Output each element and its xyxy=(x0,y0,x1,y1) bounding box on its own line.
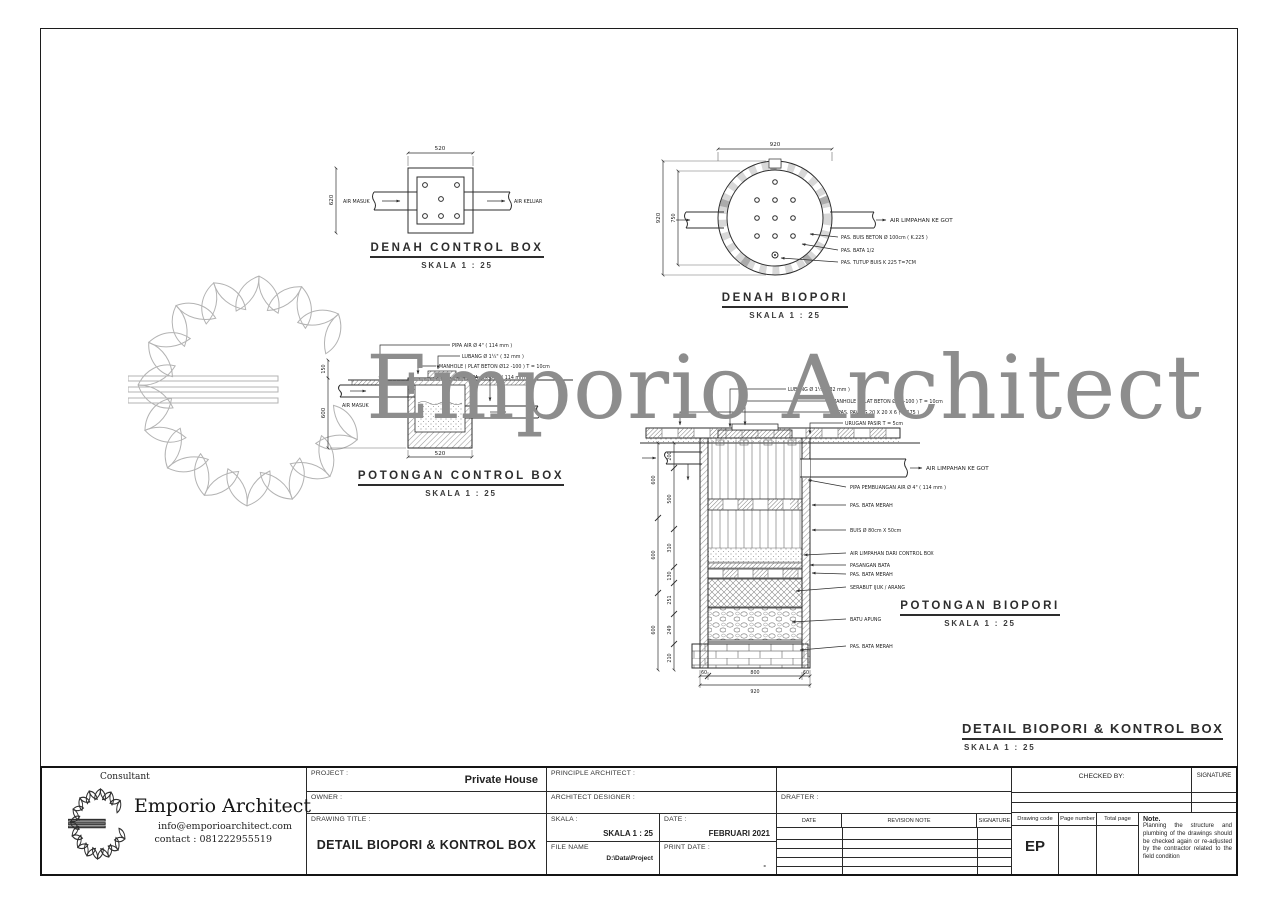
checked-by-cell: CHECKED BY: xyxy=(1012,768,1192,812)
callout-manhole: MANHOLE ( PLAT BETON Ø12 -100 ) T = 10cm xyxy=(832,398,943,405)
panel-scale-text: SKALA 1 : 25 xyxy=(350,261,564,270)
dim-label: 920 xyxy=(770,142,781,148)
consultant-contact: contact : 081222955519 xyxy=(42,834,272,845)
callout-air-dari-controlbox: AIR LIMPAHAN DARI CONTROL BOX xyxy=(850,551,934,557)
dim-label: 249 xyxy=(667,625,673,634)
callout-pipa-air-2: PIPA AIR Ø 4" ( 114 mm ) xyxy=(468,374,528,381)
architect-designer-cell: ARCHITECT DESIGNER : xyxy=(547,792,777,814)
project-label: PROJECT : xyxy=(311,770,348,777)
skala-value: SKALA 1 : 25 xyxy=(603,829,653,838)
dim-label: 600 xyxy=(651,550,657,559)
dim-label: 600 xyxy=(651,475,657,484)
dim-label: 600 xyxy=(651,625,657,634)
note-title: Note. xyxy=(1143,816,1232,823)
callout-lubang: LUBANG Ø 1¼" ( 32 mm ) xyxy=(788,386,850,393)
callout-buis: BUIS Ø 80cm X 50cm xyxy=(850,527,902,534)
drawing-code-cell: Drawing code EP xyxy=(1012,812,1059,874)
note-cell: Note. Planning the structure and plumbin… xyxy=(1139,812,1236,874)
callout-pas-bata: PAS. BATA 1/2 xyxy=(841,248,874,254)
principle-architect-label: PRINCIPLE ARCHITECT : xyxy=(551,770,635,777)
panel-scale-text: SKALA 1 : 25 xyxy=(882,619,1078,628)
title-denah-control-box: DENAH CONTROL BOX SKALA 1 : 25 xyxy=(350,238,564,270)
drawing-title-value: DETAIL BIOPORI & KONTROL BOX xyxy=(307,838,546,852)
dim-label: 60 xyxy=(803,670,809,676)
drawing-sheet: 520 620 AIR MASUK AIR KELUAR 920 920 xyxy=(0,0,1280,905)
date-cell: DATE : FEBRUARI 2021 xyxy=(660,814,777,842)
callout-tutup-buis: PAS. TUTUP BUIS K 225 T=7CM xyxy=(841,260,916,266)
owner-label: OWNER : xyxy=(311,794,342,801)
panel-scale-text: SKALA 1 : 25 xyxy=(678,311,892,320)
dim-label: 750 xyxy=(671,213,677,222)
callout-pipa-pembuangan: PIPA PEMBUANGAN AIR Ø 4" ( 114 mm ) xyxy=(850,484,946,491)
architect-designer-label: ARCHITECT DESIGNER : xyxy=(551,794,635,801)
title-potongan-biopori: POTONGAN BIOPORI SKALA 1 : 25 xyxy=(882,596,1078,628)
revision-divider xyxy=(977,828,978,874)
project-cell: PROJECT : Private House xyxy=(307,768,547,792)
total-page-cell: Total page xyxy=(1097,812,1139,874)
title-block: Consultant Emporio Architect info@empori… xyxy=(40,766,1238,876)
callout-air-masuk: AIR MASUK xyxy=(343,199,371,205)
callout-air-limpahan: AIR LIMPAHAN KE GOT xyxy=(926,466,989,472)
revision-signature-header: SIGNATURE xyxy=(977,814,1012,828)
panel-denah-biopori: 920 920 750 AIR LIMPAHAN KE GOT PAS. xyxy=(656,142,953,275)
dim-label: 600 xyxy=(321,407,327,418)
date-label: DATE : xyxy=(664,816,687,823)
blank-cell xyxy=(777,768,1012,792)
file-name-value: D:\Data\Project xyxy=(606,855,653,862)
panel-scale-text: SKALA 1 : 25 xyxy=(336,489,586,498)
dim-label: 520 xyxy=(435,146,446,152)
signature-label: SIGNATURE xyxy=(1192,768,1236,779)
callout-bata-merah-1: PAS. BATA MERAH xyxy=(850,503,893,509)
dim-label: 920 xyxy=(750,689,759,695)
drafter-label: DRAFTER : xyxy=(781,794,819,801)
consultant-name: Emporio Architect xyxy=(134,795,311,817)
revision-note-header: REVISION NOTE xyxy=(842,814,977,828)
skala-label: SKALA : xyxy=(551,816,578,823)
checked-row-line xyxy=(1012,802,1236,803)
checked-by-label: CHECKED BY: xyxy=(1012,768,1191,780)
dim-label: 500 xyxy=(667,494,673,503)
panel-title-text: POTONGAN BIOPORI xyxy=(900,600,1060,616)
print-date-label: PRINT DATE : xyxy=(664,844,710,851)
callout-air-masuk: AIR MASUK xyxy=(342,403,370,409)
print-date-cell: PRINT DATE : - xyxy=(660,842,777,874)
panel-title-text: POTONGAN CONTROL BOX xyxy=(358,470,564,486)
sheet-title-scale: SKALA 1 : 25 xyxy=(964,743,1240,752)
revision-row-line xyxy=(777,848,1011,849)
revision-row-line xyxy=(777,866,1011,867)
panel-title-text: DENAH CONTROL BOX xyxy=(370,242,543,258)
callout-manhole: MANHOLE ( PLAT BETON Ø12 -100 ) T = 10cm xyxy=(439,363,550,370)
file-name-cell: FILE NAME D:\Data\Project xyxy=(547,842,660,874)
callout-pipa-air-1: PIPA AIR Ø 4" ( 114 mm ) xyxy=(452,342,512,349)
dim-label: 920 xyxy=(656,212,662,223)
page-number-cell: Page number xyxy=(1059,812,1097,874)
callout-lubang: LUBANG Ø 1¼" ( 32 mm ) xyxy=(462,353,524,360)
dim-label: 200 xyxy=(667,451,673,460)
title-potongan-control-box: POTONGAN CONTROL BOX SKALA 1 : 25 xyxy=(336,466,586,498)
dim-label: 130 xyxy=(667,571,673,580)
consultant-email: info@emporioarchitect.com xyxy=(42,821,292,832)
dim-label: 251 xyxy=(667,595,673,604)
callout-bata-merah-2: PAS. BATA MERAH xyxy=(850,572,893,578)
skala-cell: SKALA : SKALA 1 : 25 xyxy=(547,814,660,842)
title-denah-biopori: DENAH BIOPORI SKALA 1 : 25 xyxy=(678,288,892,320)
print-date-value: - xyxy=(763,861,766,870)
signature-cell: SIGNATURE xyxy=(1192,768,1236,812)
consultant-heading: Consultant xyxy=(100,772,150,782)
sheet-title-text: DETAIL BIOPORI & KONTROL BOX xyxy=(962,721,1223,740)
dim-label: 520 xyxy=(435,451,446,457)
revision-date-header: DATE xyxy=(777,814,842,828)
dim-label: 800 xyxy=(750,670,759,676)
dim-label: 60 xyxy=(701,670,707,676)
panel-potongan-biopori: AIR LIMPAHAN KE GOT PIPA PEMBUANGAN AIR … xyxy=(640,386,989,695)
revision-divider xyxy=(842,828,843,874)
file-name-label: FILE NAME xyxy=(551,844,589,851)
consultant-cell: Consultant Emporio Architect info@empori… xyxy=(42,768,307,874)
sheet-title: DETAIL BIOPORI & KONTROL BOX SKALA 1 : 2… xyxy=(962,720,1240,752)
revision-row-line xyxy=(777,839,1011,840)
page-number-label: Page number xyxy=(1059,813,1096,826)
date-value: FEBRUARI 2021 xyxy=(709,829,770,838)
drafter-cell: DRAFTER : xyxy=(777,792,1012,814)
panel-denah-control-box: 520 620 AIR MASUK AIR KELUAR xyxy=(329,146,543,233)
note-text: Planning the structure and plumbing of t… xyxy=(1143,823,1232,862)
panel-title-text: DENAH BIOPORI xyxy=(722,292,848,308)
drawing-code-label: Drawing code xyxy=(1012,813,1058,826)
callout-paving: PAS. PAVING 20 X 20 X 6 ( K.175 ) xyxy=(838,410,919,416)
callout-buis-beton: PAS. BUIS BETON Ø 100cm ( K.225 ) xyxy=(841,234,928,241)
project-value: Private House xyxy=(465,774,538,786)
callout-air-keluar: AIR KELUAR xyxy=(514,199,543,205)
principle-architect-cell: PRINCIPLE ARCHITECT : xyxy=(547,768,777,792)
drawing-code-value: EP xyxy=(1012,838,1058,855)
dim-label: 210 xyxy=(667,653,673,662)
dim-label: 150 xyxy=(321,364,327,373)
callout-air-limpahan: AIR LIMPAHAN KE GOT xyxy=(890,218,953,224)
dim-label: 620 xyxy=(329,194,335,205)
drawing-title-label: DRAWING TITLE : xyxy=(311,816,371,823)
dim-label: 310 xyxy=(667,543,673,552)
checked-row-line xyxy=(1012,792,1236,793)
owner-cell: OWNER : xyxy=(307,792,547,814)
callout-ijuk-arang: SERABUT IJUK / ARANG xyxy=(850,585,905,591)
revision-row-line xyxy=(777,857,1011,858)
callout-urugan-pasir: URUGAN PASIR T = 5cm xyxy=(845,421,903,427)
drawing-title-cell: DRAWING TITLE : DETAIL BIOPORI & KONTROL… xyxy=(307,814,547,874)
callout-bata-merah-3: PAS. BATA MERAH xyxy=(850,644,893,650)
callout-pasangan-bata: PASANGAN BATA xyxy=(850,563,891,569)
callout-batu-apung: BATU APUNG xyxy=(850,617,881,623)
total-page-label: Total page xyxy=(1097,813,1138,826)
panel-potongan-control-box: AIR MASUK PIPA AIR Ø 4" ( 114 mm ) LUBAN… xyxy=(321,342,573,457)
revision-table: DATE REVISION NOTE SIGNATURE xyxy=(777,814,1012,874)
